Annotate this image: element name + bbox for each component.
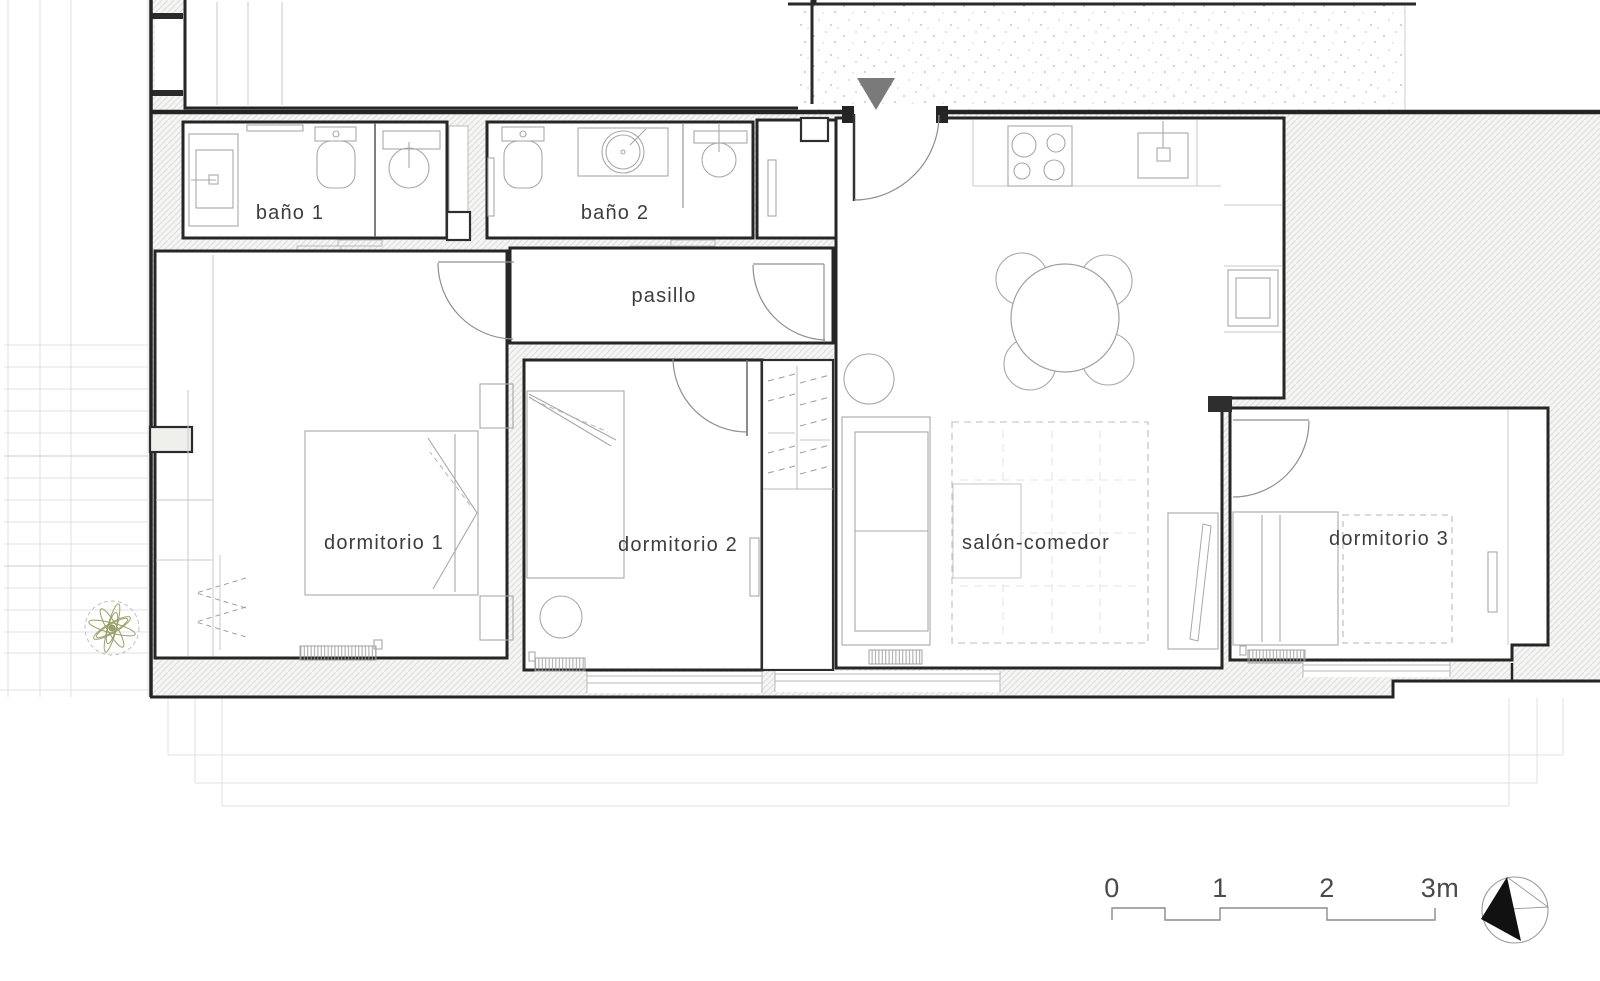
floor-plan-page: baño 1 baño 2 [0, 0, 1600, 981]
floor-plan-drawing: baño 1 baño 2 [0, 0, 1600, 981]
scale-tick-2: 2 [1319, 873, 1335, 903]
sofa [842, 417, 930, 645]
wardrobe-dormitorio2 [762, 360, 833, 670]
coffee-table [953, 484, 1021, 578]
duct-shaft [447, 126, 470, 240]
room-bano2: baño 2 [487, 122, 753, 252]
window-dormitorio3 [1303, 662, 1450, 677]
radiator [869, 650, 922, 664]
room-bano1: baño 1 [183, 122, 447, 252]
room-label-bano1: baño 1 [256, 202, 324, 224]
wardrobe-handle [1488, 552, 1497, 612]
room-label-bano2: baño 2 [581, 202, 649, 224]
room-pasillo: pasillo [510, 248, 833, 343]
radiator [300, 646, 376, 660]
room-salon-comedor: salón-comedor [836, 118, 1284, 668]
window-dormitorio2 [587, 672, 762, 693]
room-label-salon-comedor: salón-comedor [962, 532, 1110, 554]
room-label-dormitorio3: dormitorio 3 [1329, 528, 1449, 550]
room-label-dormitorio1: dormitorio 1 [324, 532, 444, 554]
scale-tick-0: 0 [1104, 873, 1120, 903]
room-dormitorio2: dormitorio 2 [524, 360, 762, 671]
neighbor-room [151, 0, 815, 108]
room-label-dormitorio2: dormitorio 2 [618, 534, 738, 556]
room-dormitorio1: dormitorio 1 [150, 251, 513, 660]
window-salon [775, 671, 1000, 692]
radiator [535, 658, 585, 671]
room-dormitorio3: dormitorio 3 [1208, 396, 1548, 663]
wall-niche [155, 18, 183, 90]
scale-tick-3m: 3m [1421, 873, 1460, 903]
tv-unit [1168, 513, 1218, 649]
radiator [1248, 650, 1305, 663]
room-label-pasillo: pasillo [631, 285, 696, 307]
wardrobe-handle [750, 538, 759, 596]
wall-stub [1208, 396, 1232, 412]
room-vestibule [757, 118, 838, 238]
wall-pier [150, 427, 192, 452]
scale-tick-1: 1 [1212, 873, 1228, 903]
